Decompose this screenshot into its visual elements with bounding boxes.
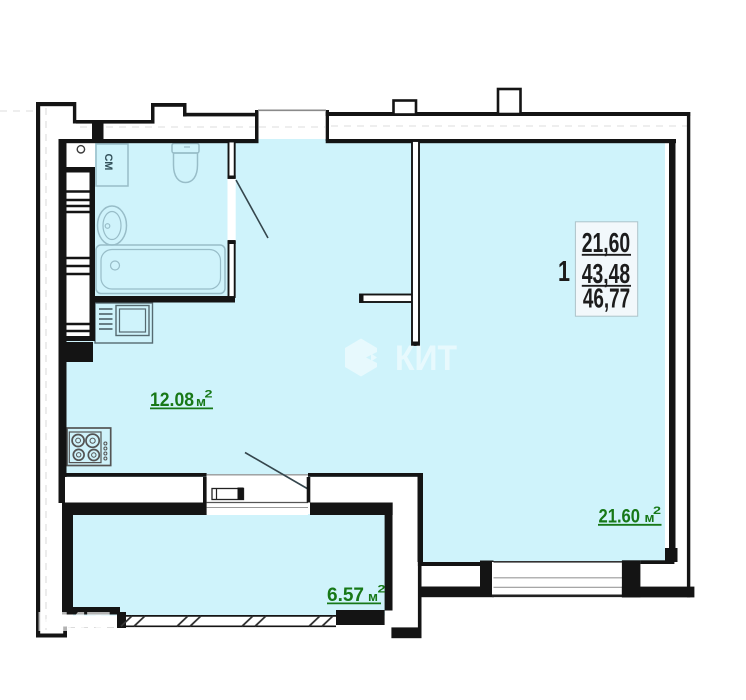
svg-text:СМ: СМ (102, 154, 114, 171)
svg-text:КИТ: КИТ (395, 339, 457, 378)
svg-text:2: 2 (378, 584, 386, 596)
svg-text:2: 2 (205, 389, 213, 401)
svg-text:1: 1 (558, 256, 570, 288)
svg-text:2: 2 (653, 505, 661, 517)
svg-text:м: м (368, 590, 378, 604)
svg-text:46,77: 46,77 (583, 283, 630, 314)
svg-text:КИТ: КИТ (36, 606, 110, 637)
svg-text:21,60: 21,60 (582, 227, 630, 258)
